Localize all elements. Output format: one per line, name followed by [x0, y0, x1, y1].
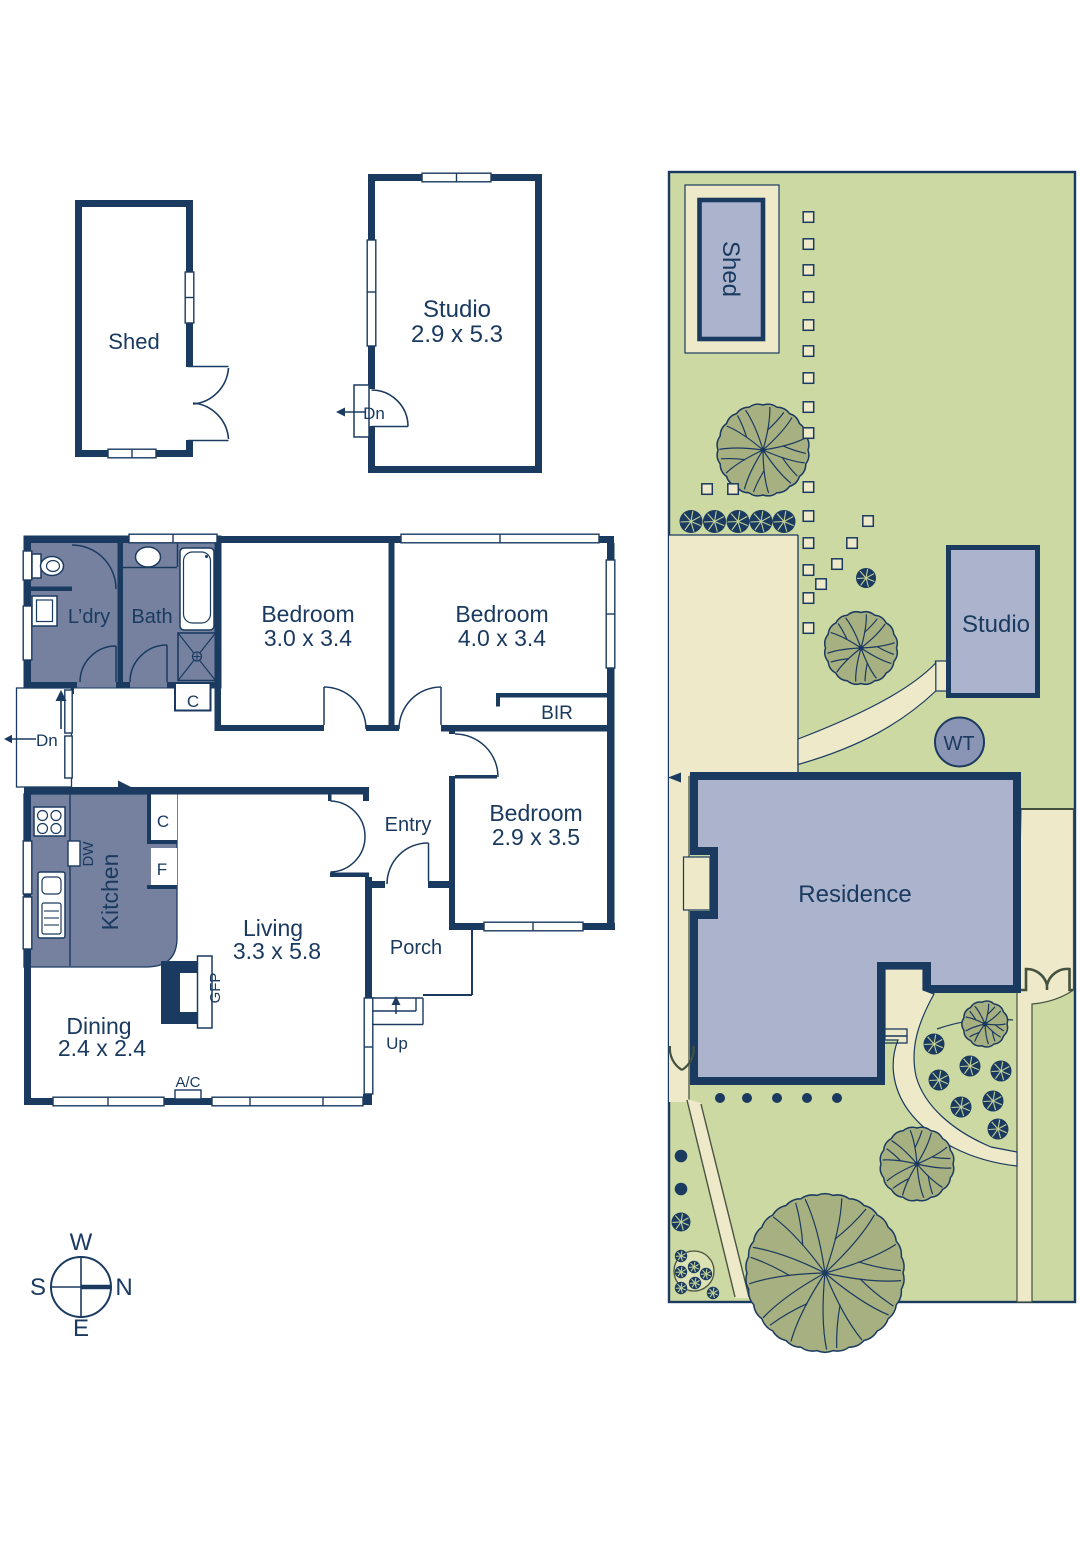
svg-text:Studio: Studio	[962, 611, 1030, 638]
svg-text:Bedroom: Bedroom	[489, 800, 582, 826]
svg-text:2.9 x 5.3: 2.9 x 5.3	[411, 321, 503, 348]
svg-text:GFP: GFP	[207, 973, 224, 1004]
svg-text:Dn: Dn	[363, 404, 385, 423]
svg-text:Entry: Entry	[385, 814, 432, 836]
svg-text:BIR: BIR	[541, 703, 573, 724]
svg-text:Shed: Shed	[717, 241, 744, 297]
svg-text:Studio: Studio	[423, 296, 491, 323]
svg-text:Residence: Residence	[798, 881, 911, 908]
svg-text:Up: Up	[386, 1034, 408, 1053]
svg-text:3.3 x 5.8: 3.3 x 5.8	[233, 938, 321, 964]
svg-text:Porch: Porch	[390, 937, 442, 959]
svg-text:Bedroom: Bedroom	[455, 601, 548, 627]
svg-text:N: N	[115, 1274, 132, 1301]
svg-text:Dn: Dn	[36, 731, 58, 750]
svg-text:C: C	[187, 692, 199, 711]
svg-text:WT: WT	[943, 733, 974, 755]
svg-text:E: E	[73, 1315, 89, 1342]
svg-text:2.9 x 3.5: 2.9 x 3.5	[492, 824, 580, 850]
svg-text:W: W	[70, 1229, 93, 1256]
svg-text:4.0 x 3.4: 4.0 x 3.4	[458, 625, 546, 651]
svg-text:3.0 x 3.4: 3.0 x 3.4	[264, 625, 352, 651]
svg-text:DW: DW	[80, 841, 97, 867]
svg-text:2.4 x 2.4: 2.4 x 2.4	[58, 1035, 146, 1061]
svg-text:Bedroom: Bedroom	[261, 601, 354, 627]
svg-text:Shed: Shed	[108, 329, 159, 354]
svg-text:S: S	[30, 1274, 46, 1301]
svg-text:L’dry: L’dry	[68, 606, 110, 628]
svg-text:A/C: A/C	[175, 1074, 200, 1091]
svg-text:C: C	[157, 812, 169, 831]
svg-text:F: F	[157, 860, 167, 879]
svg-text:Bath: Bath	[131, 606, 172, 628]
svg-text:Kitchen: Kitchen	[97, 854, 123, 931]
